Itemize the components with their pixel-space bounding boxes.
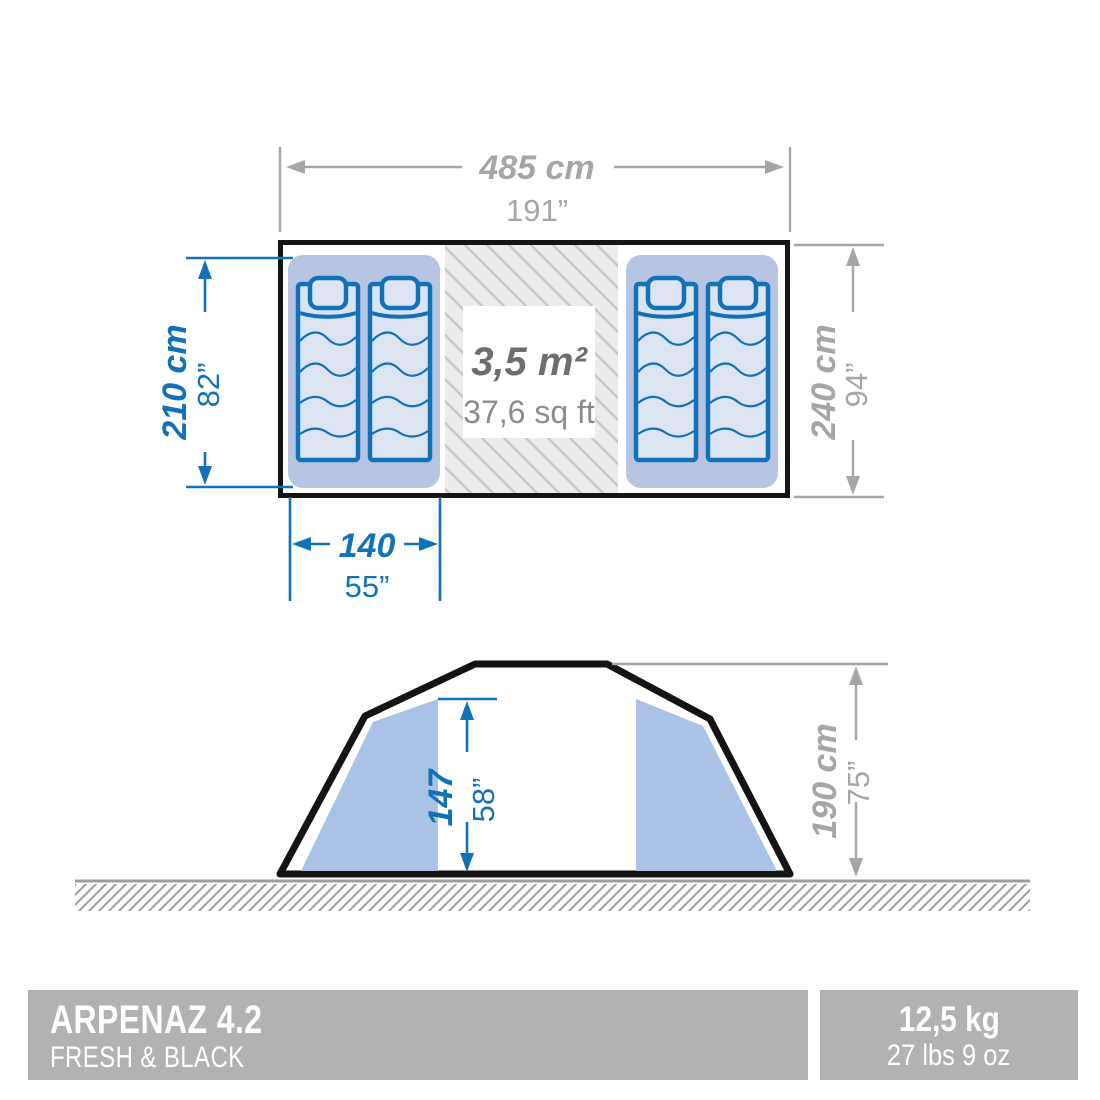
total-height-cm-label: 190 cm — [806, 723, 844, 838]
arrow-down-icon — [198, 466, 212, 485]
dimension-width-485: 485 cm 191” — [280, 147, 790, 232]
product-name: ARPENAZ 4.2 — [50, 1000, 262, 1040]
depth-left-cm-label: 210 cm — [156, 324, 194, 440]
interior-height-cm-label: 147 — [422, 768, 460, 827]
depth-right-in-label: 94” — [839, 363, 874, 408]
sleeping-mat — [370, 278, 430, 460]
product-line: FRESH & BLACK — [50, 1042, 245, 1074]
arrow-right-icon — [419, 537, 438, 551]
sleeping-mat — [636, 278, 696, 460]
living-area-size-imperial: 37,6 sq ft — [463, 394, 595, 430]
arrow-up-icon — [198, 260, 212, 279]
ground-hatch — [75, 884, 1030, 911]
depth-left-in-label: 82” — [191, 363, 226, 408]
weight-lbs: 27 lbs 9 oz — [887, 1039, 1010, 1072]
depth-right-cm-label: 240 cm — [805, 324, 843, 440]
sleeping-mat — [708, 278, 768, 460]
bed-width-cm-label: 140 — [339, 527, 396, 565]
arrow-left-icon — [292, 537, 311, 551]
bed-width-in-label: 55” — [345, 569, 390, 604]
weight-kg: 12,5 kg — [899, 1002, 1000, 1037]
width-in-label: 191” — [506, 193, 568, 228]
dimension-depth-210: 210 cm 82” — [156, 258, 293, 487]
total-height-in-label: 75” — [841, 761, 876, 806]
arrow-up-icon — [846, 247, 860, 266]
arrow-down-icon — [846, 476, 860, 495]
tent-dimensions-diagram: 3,5 m² 37,6 sq ft 485 cm 191” 210 cm 82” — [0, 0, 1100, 980]
arrow-down-icon — [849, 858, 863, 877]
top-view-floor-plan: 3,5 m² 37,6 sq ft 485 cm 191” 210 cm 82” — [156, 147, 884, 604]
living-area-size: 3,5 m² — [471, 340, 588, 384]
weight-banner: 12,5 kg 27 lbs 9 oz — [820, 990, 1078, 1080]
interior-height-in-label: 58” — [466, 778, 501, 823]
dimension-depth-240: 240 cm 94” — [794, 245, 884, 497]
product-name-banner: ARPENAZ 4.2 FRESH & BLACK — [28, 990, 808, 1080]
sleeping-mat — [298, 278, 358, 460]
dimension-bed-140: 140 55” — [290, 497, 440, 604]
width-cm-label: 485 cm — [478, 149, 594, 187]
side-view-profile: 147 58” 190 cm 75” — [75, 664, 1030, 911]
arrow-right-icon — [765, 160, 784, 174]
arrow-up-icon — [849, 666, 863, 685]
arrow-left-icon — [286, 160, 305, 174]
